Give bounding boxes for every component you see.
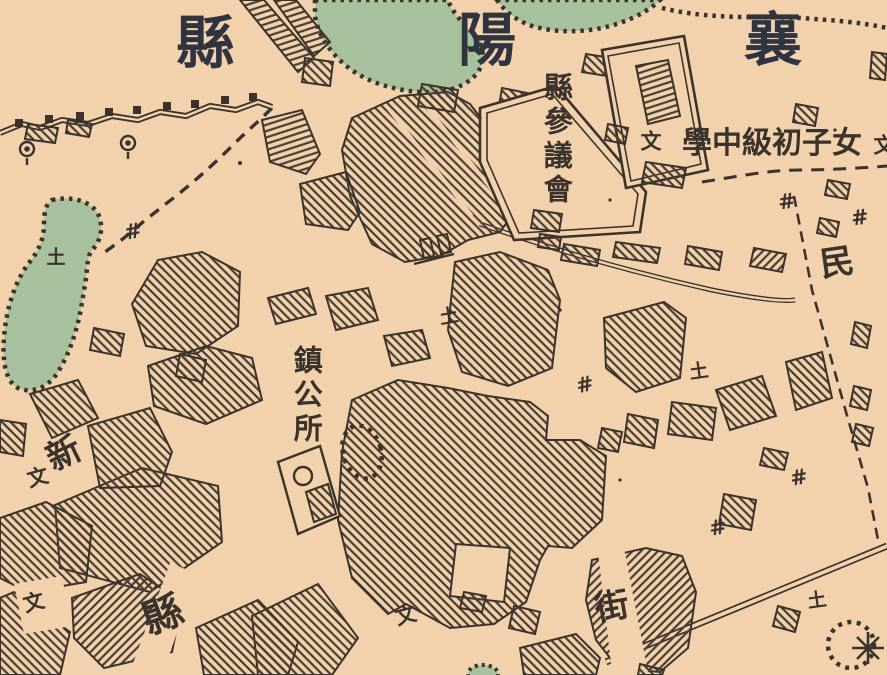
building-block xyxy=(598,428,622,452)
building-block xyxy=(852,424,873,446)
historical-city-map: 襄陽縣 xyxy=(0,0,887,675)
building-block xyxy=(613,242,660,263)
building-block xyxy=(88,408,172,488)
building-block xyxy=(418,84,458,112)
street-band xyxy=(14,576,72,634)
building-block xyxy=(520,634,600,675)
building-block xyxy=(460,592,486,612)
building-block xyxy=(25,124,58,143)
building-block xyxy=(605,124,628,144)
building-block xyxy=(302,58,333,86)
building-block xyxy=(384,330,430,366)
building-block xyxy=(538,234,561,250)
building-block xyxy=(719,494,756,530)
building-block xyxy=(817,218,839,237)
building-block xyxy=(509,606,540,634)
pond-top-center xyxy=(315,0,483,92)
building-block xyxy=(90,328,124,356)
courtyard xyxy=(450,544,510,602)
building-block xyxy=(132,252,240,354)
building-blocks xyxy=(0,0,887,675)
shoreline-top-right xyxy=(662,8,887,28)
building-block xyxy=(624,414,658,448)
pond-left xyxy=(4,199,102,391)
building-block xyxy=(66,120,92,137)
building-block xyxy=(531,210,562,232)
building-block xyxy=(750,248,786,272)
boundary-dashed xyxy=(102,108,272,254)
building-block xyxy=(870,52,887,80)
building-block xyxy=(793,104,818,126)
building-block xyxy=(786,352,832,410)
building-block xyxy=(773,606,800,632)
building-block xyxy=(604,302,686,392)
building-block xyxy=(716,376,776,430)
map-canvas xyxy=(0,0,887,675)
building-block xyxy=(448,252,560,386)
building-block xyxy=(760,448,788,470)
building-block xyxy=(326,288,378,330)
building-block xyxy=(176,354,206,382)
building-block xyxy=(685,246,722,270)
building-block xyxy=(825,180,850,199)
building-block xyxy=(268,288,316,324)
town-hall-compound xyxy=(278,446,340,534)
road-school-dashed xyxy=(702,166,887,182)
pond-top-right-strip xyxy=(497,0,660,31)
building-block xyxy=(850,386,871,410)
pond-bottom-tiny xyxy=(468,665,498,675)
building-block xyxy=(851,322,871,348)
building-block xyxy=(0,420,26,456)
building-block xyxy=(148,346,262,424)
building-block xyxy=(262,110,320,174)
star-symbol xyxy=(852,632,884,664)
building-block xyxy=(668,402,716,440)
building-block xyxy=(561,244,600,266)
